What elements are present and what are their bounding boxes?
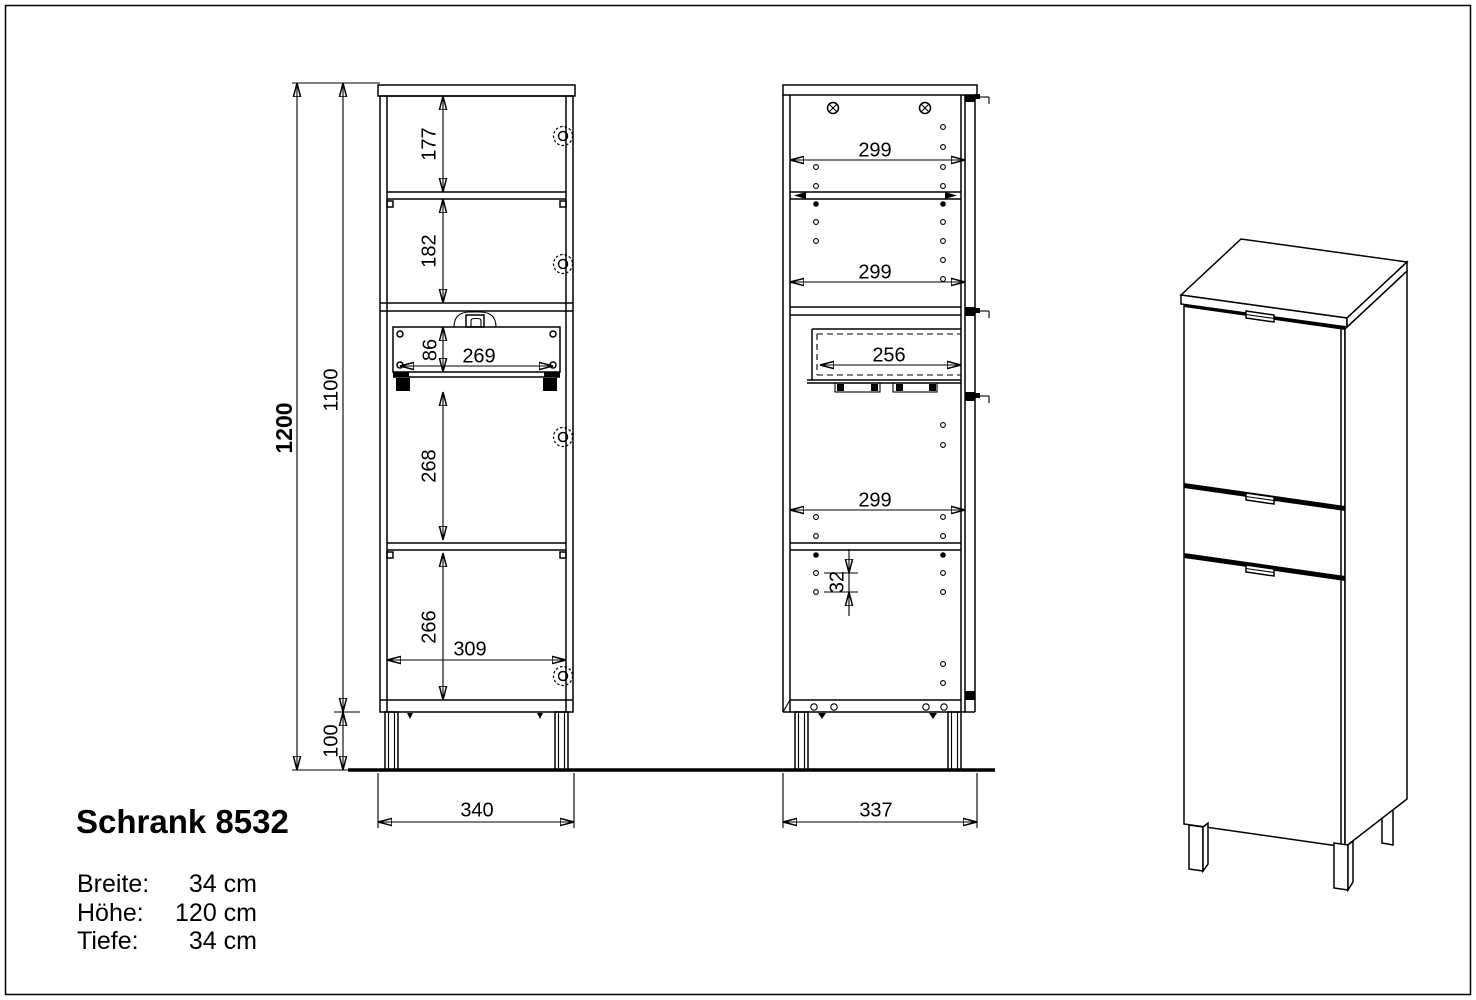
dim-bottom-compartment-label: 266 [418, 610, 440, 643]
carcass-outline [380, 96, 573, 712]
shelf-3 [387, 543, 566, 558]
dim-inner-width: 309 [387, 638, 566, 660]
dim-overall-depth: 337 [783, 773, 977, 828]
perspective-view [1181, 239, 1407, 890]
dim-drawer-depth: 256 [820, 344, 961, 366]
cam-screw-icon [828, 103, 931, 114]
spec-value: 34 cm [189, 870, 257, 899]
drawer-slide-bracket [396, 378, 410, 391]
front-view-dimensions: 1200 1100 100 177 182 86 269 268 [271, 83, 574, 828]
screw-icon [550, 362, 556, 368]
spec-value: 34 cm [189, 927, 257, 956]
shelf-1 [387, 192, 566, 207]
dim-inner-width-label: 309 [453, 638, 486, 660]
dim-total-height-label: 1200 [271, 402, 297, 453]
drawer-handle [454, 312, 496, 327]
dim-lower-depth-label: 299 [858, 489, 891, 511]
dim-drawer-width-label: 269 [462, 345, 495, 367]
divider-section [790, 307, 961, 315]
shelf-1-section [790, 192, 961, 199]
dim-drawer-front-height: 86 [419, 327, 443, 372]
side-view [783, 85, 989, 770]
screw-icon [550, 331, 556, 337]
feet [795, 712, 961, 770]
drawer-slide-bracket [543, 378, 557, 391]
dim-hole-pitch: 32 [824, 549, 858, 616]
dim-overall-width: 340 [378, 773, 574, 828]
front-view [378, 85, 575, 770]
dim-second-compartment-label: 182 [418, 234, 440, 267]
dim-top-compartment-label: 177 [418, 127, 440, 160]
dim-third-compartment-label: 268 [418, 449, 440, 482]
spec-row-breite: Breite: 34 cm [77, 870, 257, 899]
dim-foot-height-label: 100 [320, 724, 342, 757]
technical-drawing: 1200 1100 100 177 182 86 269 268 [0, 0, 1476, 1000]
dim-third-compartment: 268 [418, 392, 443, 540]
dim-overall-depth-label: 337 [859, 799, 892, 821]
mount-bracket-icon [975, 94, 989, 403]
spec-list: Breite: 34 cm Höhe: 120 cm Tiefe: 34 cm [77, 870, 257, 956]
dim-total-height: 1200 [271, 83, 297, 770]
product-title: Schrank 8532 [76, 803, 289, 841]
foot-front-right [1334, 841, 1353, 890]
side-face [1345, 271, 1407, 847]
dim-drawer-depth-label: 256 [872, 344, 905, 366]
screw-icon [397, 331, 403, 337]
spec-value: 120 cm [175, 899, 257, 928]
divider [380, 303, 573, 311]
spec-label: Höhe: [77, 899, 144, 928]
dim-carcass-height-label: 1100 [320, 368, 342, 411]
dim-mid-depth-label: 299 [858, 261, 891, 283]
door-edge [965, 95, 975, 712]
foot-front-left [1189, 823, 1208, 871]
dim-drawer-front-height-label: 86 [419, 339, 441, 361]
dim-foot-height: 100 [320, 712, 343, 770]
bottom-screws [811, 704, 947, 710]
spec-row-hoehe: Höhe: 120 cm [77, 899, 257, 928]
screw-icon [397, 362, 403, 368]
dim-mid-depth: 299 [790, 261, 965, 283]
spec-row-tiefe: Tiefe: 34 cm [77, 927, 257, 956]
dim-lower-depth: 299 [790, 489, 965, 511]
shelf-pin-holes [813, 125, 946, 686]
dim-overall-width-label: 340 [460, 799, 493, 821]
dim-second-compartment: 182 [418, 199, 443, 303]
dim-top-depth: 299 [790, 139, 965, 161]
spec-label: Tiefe: [77, 927, 139, 956]
dim-top-compartment: 177 [418, 96, 443, 192]
shelf-4-section [790, 543, 961, 550]
dim-hole-pitch-label: 32 [826, 571, 848, 593]
drawing-sheet: 1200 1100 100 177 182 86 269 268 [0, 0, 1476, 1000]
top-panel [378, 85, 575, 96]
dim-bottom-compartment: 266 [418, 553, 443, 700]
spec-label: Breite: [77, 870, 149, 899]
top-panel [783, 85, 977, 95]
dim-carcass-height: 1100 [320, 83, 343, 712]
dim-top-depth-label: 299 [858, 139, 891, 161]
hinge-icon [554, 127, 573, 686]
feet [385, 712, 568, 770]
